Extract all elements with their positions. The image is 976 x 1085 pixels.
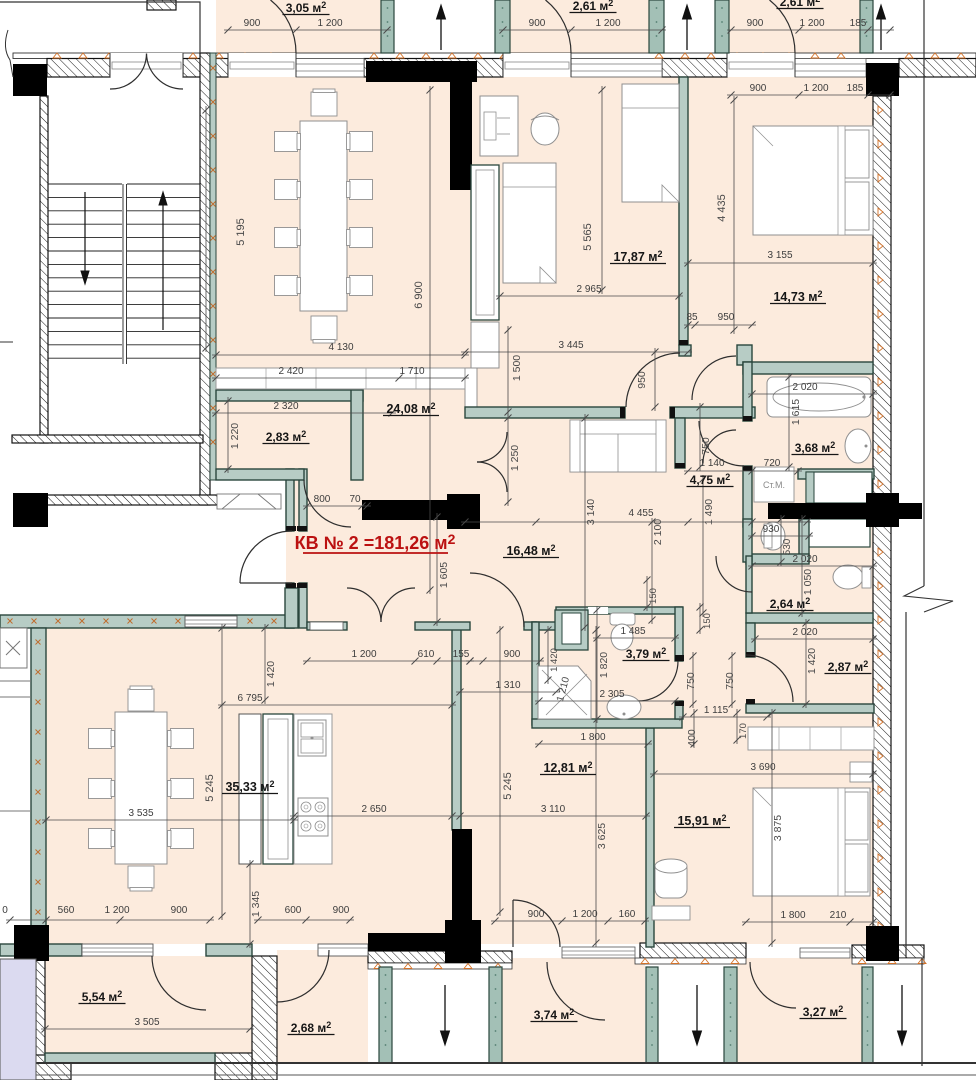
svg-text:17,87 м2: 17,87 м2	[613, 249, 662, 264]
svg-text:2,87 м2: 2,87 м2	[828, 659, 869, 674]
svg-text:3 140: 3 140	[585, 499, 597, 525]
svg-text:3,27 м2: 3,27 м2	[803, 1004, 844, 1019]
svg-text:3 875: 3 875	[772, 815, 784, 841]
svg-text:2,61 м2: 2,61 м2	[573, 0, 614, 13]
svg-text:35,33 м2: 35,33 м2	[225, 779, 274, 794]
svg-text:530: 530	[782, 538, 793, 555]
svg-text:3 535: 3 535	[128, 808, 153, 819]
svg-text:1 200: 1 200	[572, 909, 597, 920]
svg-text:5 245: 5 245	[204, 774, 216, 802]
svg-text:1 420: 1 420	[549, 648, 560, 672]
svg-text:900: 900	[529, 18, 546, 29]
svg-text:4,75 м2: 4,75 м2	[690, 472, 731, 487]
svg-text:950: 950	[718, 312, 735, 323]
svg-text:6 900: 6 900	[413, 281, 425, 309]
svg-text:16,48 м2: 16,48 м2	[506, 543, 555, 558]
svg-text:14,73 м2: 14,73 м2	[773, 289, 822, 304]
svg-text:1 220: 1 220	[229, 423, 241, 449]
svg-text:900: 900	[171, 905, 188, 916]
svg-text:4 435: 4 435	[716, 194, 728, 222]
svg-text:1 200: 1 200	[803, 83, 828, 94]
svg-text:2 965: 2 965	[576, 284, 601, 295]
svg-text:160: 160	[619, 909, 636, 920]
svg-text:15,91 м2: 15,91 м2	[677, 813, 726, 828]
svg-text:750: 750	[700, 437, 712, 455]
svg-text:12,81 м2: 12,81 м2	[543, 760, 592, 775]
svg-text:900: 900	[528, 909, 545, 920]
svg-text:3 110: 3 110	[541, 804, 566, 815]
svg-text:3 625: 3 625	[596, 823, 608, 849]
svg-text:1 310: 1 310	[495, 680, 520, 691]
svg-text:1 485: 1 485	[620, 626, 645, 637]
svg-text:1 615: 1 615	[790, 399, 802, 425]
svg-text:1 250: 1 250	[509, 445, 521, 471]
svg-text:3 155: 3 155	[767, 250, 792, 261]
svg-text:5,54 м2: 5,54 м2	[82, 989, 123, 1004]
svg-text:900: 900	[244, 18, 261, 29]
svg-text:1 200: 1 200	[351, 649, 376, 660]
svg-text:400: 400	[686, 729, 698, 747]
svg-text:5 565: 5 565	[582, 223, 594, 251]
svg-text:210: 210	[830, 910, 847, 921]
svg-text:3,74 м2: 3,74 м2	[534, 1007, 575, 1022]
svg-text:1 500: 1 500	[511, 355, 523, 381]
svg-text:4 130: 4 130	[328, 342, 353, 353]
svg-text:930: 930	[763, 524, 780, 535]
svg-text:1 605: 1 605	[438, 562, 450, 588]
svg-text:6 795: 6 795	[237, 693, 262, 704]
svg-text:1 490: 1 490	[703, 499, 715, 525]
svg-text:1 800: 1 800	[780, 910, 805, 921]
svg-text:950: 950	[636, 371, 648, 389]
svg-text:560: 560	[58, 905, 75, 916]
svg-text:24,08 м2: 24,08 м2	[386, 401, 435, 416]
svg-text:3 445: 3 445	[558, 340, 583, 351]
svg-text:5 195: 5 195	[235, 218, 247, 246]
svg-text:85: 85	[686, 312, 698, 323]
svg-text:Ст.М.: Ст.М.	[763, 480, 785, 490]
svg-text:900: 900	[504, 649, 521, 660]
svg-text:70: 70	[349, 494, 361, 505]
svg-text:1 200: 1 200	[104, 905, 129, 916]
svg-text:900: 900	[747, 18, 764, 29]
svg-text:1 200: 1 200	[317, 18, 342, 29]
svg-text:2,68 м2: 2,68 м2	[291, 1020, 332, 1035]
svg-text:1 420: 1 420	[806, 648, 818, 674]
svg-text:5 245: 5 245	[502, 772, 514, 800]
svg-text:2 020: 2 020	[792, 627, 817, 638]
svg-text:2,64 м2: 2,64 м2	[770, 596, 811, 611]
svg-text:2,83 м2: 2,83 м2	[266, 429, 307, 444]
svg-text:1 800: 1 800	[580, 732, 605, 743]
svg-text:4 455: 4 455	[628, 508, 653, 519]
svg-text:2 420: 2 420	[278, 366, 303, 377]
svg-text:1 345: 1 345	[250, 891, 262, 917]
svg-text:2,61 м2: 2,61 м2	[780, 0, 821, 9]
svg-text:185: 185	[850, 18, 867, 29]
svg-text:2 650: 2 650	[361, 804, 386, 815]
svg-text:2 100: 2 100	[652, 519, 664, 545]
svg-text:3,79 м2: 3,79 м2	[626, 646, 667, 661]
svg-text:150: 150	[648, 588, 659, 604]
svg-text:150: 150	[702, 613, 713, 629]
svg-text:610: 610	[418, 649, 435, 660]
svg-text:750: 750	[685, 672, 697, 690]
svg-text:1 200: 1 200	[799, 18, 824, 29]
svg-text:155: 155	[453, 649, 470, 660]
svg-text:1 200: 1 200	[595, 18, 620, 29]
svg-text:3 505: 3 505	[134, 1017, 159, 1028]
svg-text:0: 0	[2, 905, 8, 916]
svg-text:600: 600	[285, 905, 302, 916]
svg-text:1 420: 1 420	[265, 661, 277, 687]
svg-text:800: 800	[314, 494, 331, 505]
svg-text:3,68 м2: 3,68 м2	[795, 440, 836, 455]
svg-text:1 710: 1 710	[399, 366, 424, 377]
svg-text:170: 170	[738, 723, 749, 739]
svg-text:900: 900	[750, 83, 767, 94]
svg-text:3,05 м2: 3,05 м2	[286, 0, 327, 15]
svg-text:2 320: 2 320	[273, 401, 298, 412]
svg-text:750: 750	[724, 672, 736, 690]
svg-text:900: 900	[333, 905, 350, 916]
svg-text:1 115: 1 115	[704, 705, 729, 716]
svg-text:2 305: 2 305	[599, 689, 624, 700]
svg-text:КВ № 2 =181,26 м2: КВ № 2 =181,26 м2	[295, 531, 456, 553]
svg-text:185: 185	[847, 83, 864, 94]
svg-text:2 020: 2 020	[792, 554, 817, 565]
svg-text:720: 720	[764, 458, 781, 469]
svg-text:1 820: 1 820	[598, 652, 610, 678]
svg-text:1 050: 1 050	[802, 569, 814, 595]
svg-text:2 020: 2 020	[792, 382, 817, 393]
